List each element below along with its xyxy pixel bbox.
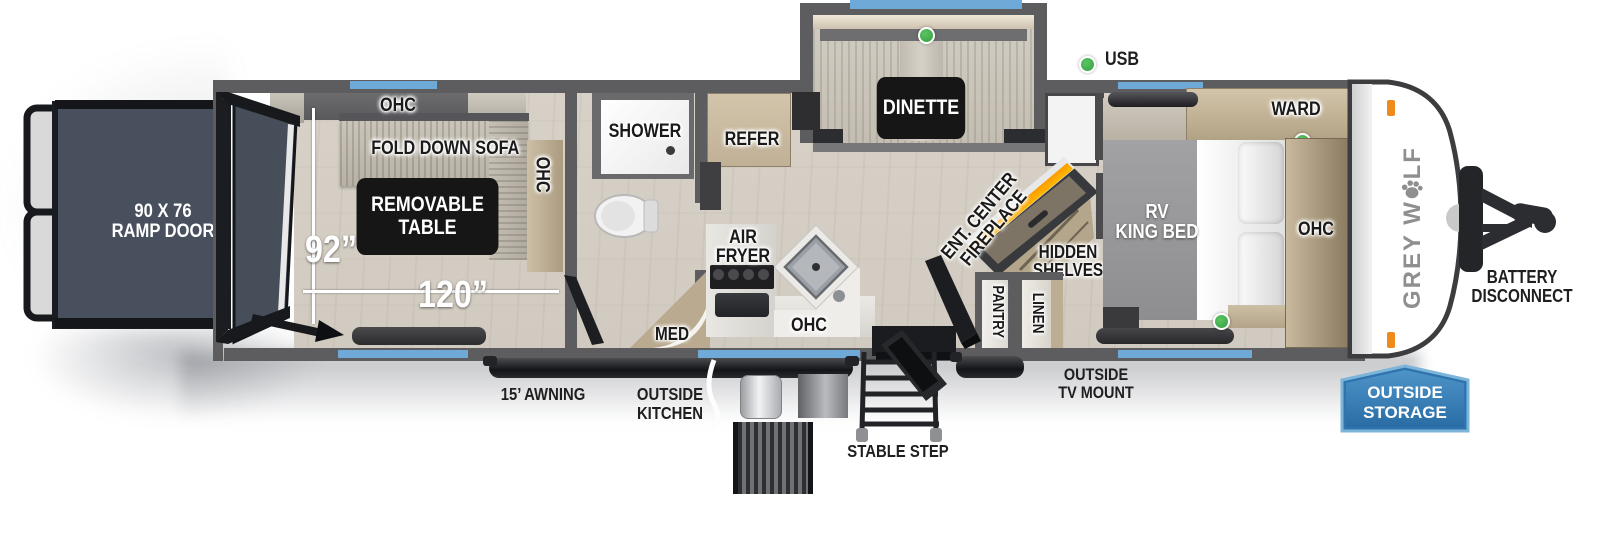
svg-text:STORAGE: STORAGE — [1363, 403, 1447, 422]
svg-text:OUTSIDE: OUTSIDE — [1367, 383, 1443, 402]
